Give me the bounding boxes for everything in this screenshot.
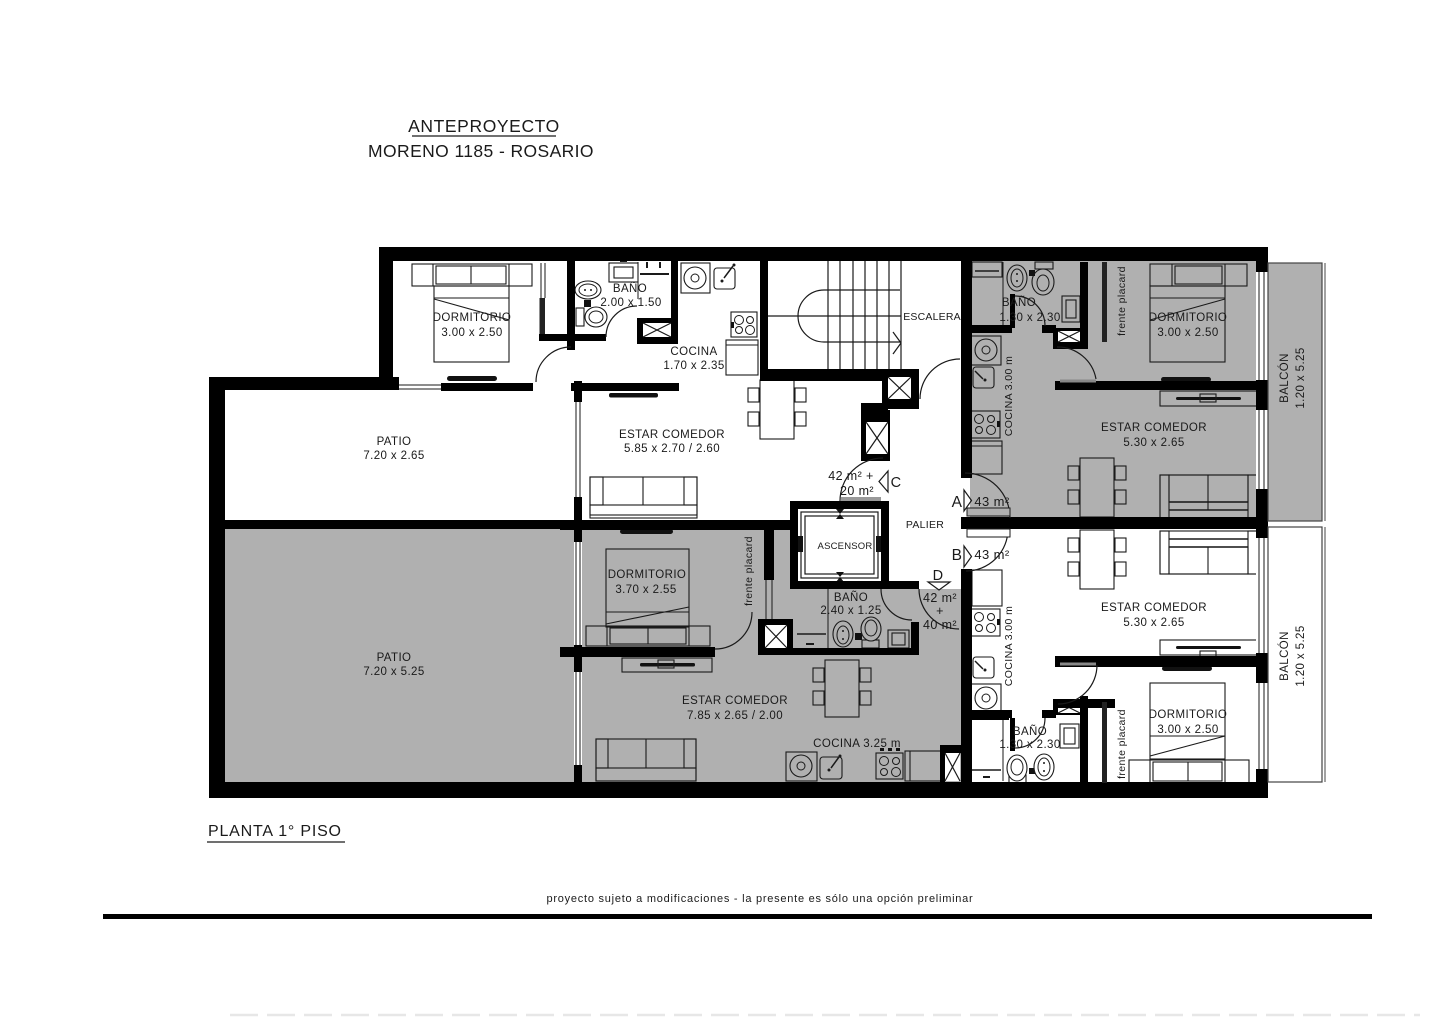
svg-text:frente placard: frente placard bbox=[1116, 266, 1128, 336]
svg-text:3.00 x 2.50: 3.00 x 2.50 bbox=[1157, 724, 1218, 736]
svg-text:40 m²: 40 m² bbox=[923, 618, 957, 632]
svg-text:1.20 x 5.25: 1.20 x 5.25 bbox=[1295, 625, 1307, 686]
svg-text:7.20 x 5.25: 7.20 x 5.25 bbox=[363, 666, 424, 678]
svg-text:2.00 x 1.50: 2.00 x 1.50 bbox=[600, 297, 661, 309]
svg-text:1.30 x 2.30: 1.30 x 2.30 bbox=[999, 739, 1060, 751]
svg-text:1.70 x 2.35: 1.70 x 2.35 bbox=[663, 360, 724, 372]
svg-text:DORMITORIO: DORMITORIO bbox=[1149, 312, 1228, 324]
svg-text:43 m²: 43 m² bbox=[974, 547, 1010, 562]
svg-text:MORENO 1185 - ROSARIO: MORENO 1185 - ROSARIO bbox=[368, 141, 594, 161]
svg-text:3.00 x 2.50: 3.00 x 2.50 bbox=[1157, 327, 1218, 339]
svg-text:ASCENSOR: ASCENSOR bbox=[818, 541, 873, 552]
svg-text:proyecto sujeto a modificacion: proyecto sujeto a modificaciones - la pr… bbox=[547, 893, 974, 905]
svg-text:ESTAR COMEDOR: ESTAR COMEDOR bbox=[1101, 602, 1207, 614]
svg-text:ANTEPROYECTO: ANTEPROYECTO bbox=[408, 116, 560, 136]
svg-text:5.30 x 2.65: 5.30 x 2.65 bbox=[1123, 617, 1184, 629]
svg-text:DORMITORIO: DORMITORIO bbox=[1149, 709, 1228, 721]
svg-text:43 m²: 43 m² bbox=[974, 494, 1010, 509]
svg-text:BALCÓN: BALCÓN bbox=[1278, 353, 1291, 403]
svg-text:42 m² +: 42 m² + bbox=[828, 469, 874, 483]
svg-text:PALIER: PALIER bbox=[906, 519, 944, 531]
svg-text:ESTAR COMEDOR: ESTAR COMEDOR bbox=[619, 429, 725, 441]
svg-text:PATIO: PATIO bbox=[377, 652, 412, 664]
svg-text:1.30 x 2.30: 1.30 x 2.30 bbox=[999, 312, 1060, 324]
svg-text:BAÑO: BAÑO bbox=[1002, 296, 1036, 309]
svg-text:3.00 x 2.50: 3.00 x 2.50 bbox=[441, 327, 502, 339]
svg-text:BAÑO: BAÑO bbox=[1013, 725, 1047, 738]
svg-text:frente placard: frente placard bbox=[743, 536, 755, 606]
svg-text:1.20 x 5.25: 1.20 x 5.25 bbox=[1295, 347, 1307, 408]
svg-text:42 m²: 42 m² bbox=[923, 591, 957, 605]
svg-text:BAÑO: BAÑO bbox=[834, 591, 868, 604]
svg-text:2.40 x 1.25: 2.40 x 1.25 bbox=[820, 605, 881, 617]
svg-text:B: B bbox=[952, 547, 963, 564]
svg-text:COCINA 3.00 m: COCINA 3.00 m bbox=[1003, 356, 1015, 436]
svg-text:COCINA: COCINA bbox=[670, 346, 717, 358]
svg-text:ESTAR COMEDOR: ESTAR COMEDOR bbox=[682, 695, 788, 707]
svg-text:PATIO: PATIO bbox=[377, 436, 412, 448]
svg-text:A: A bbox=[952, 494, 963, 511]
svg-text:3.70 x 2.55: 3.70 x 2.55 bbox=[615, 584, 676, 596]
svg-text:5.85 x 2.70 / 2.60: 5.85 x 2.70 / 2.60 bbox=[624, 443, 720, 455]
svg-text:BALCÓN: BALCÓN bbox=[1278, 631, 1291, 681]
svg-text:COCINA 3.00 m: COCINA 3.00 m bbox=[1003, 606, 1015, 686]
svg-text:5.30 x 2.65: 5.30 x 2.65 bbox=[1123, 437, 1184, 449]
svg-text:C: C bbox=[891, 475, 902, 491]
svg-text:BAÑO: BAÑO bbox=[613, 282, 647, 295]
svg-text:DORMITORIO: DORMITORIO bbox=[433, 312, 512, 324]
svg-text:+: + bbox=[936, 604, 944, 618]
svg-text:ESTAR COMEDOR: ESTAR COMEDOR bbox=[1101, 422, 1207, 434]
svg-text:20 m²: 20 m² bbox=[840, 484, 874, 498]
svg-text:frente placard: frente placard bbox=[1116, 709, 1128, 779]
svg-text:PLANTA 1° PISO: PLANTA 1° PISO bbox=[208, 823, 342, 840]
svg-text:DORMITORIO: DORMITORIO bbox=[608, 569, 687, 581]
svg-text:ESCALERA: ESCALERA bbox=[903, 311, 961, 323]
svg-text:7.85 x 2.65 / 2.00: 7.85 x 2.65 / 2.00 bbox=[687, 710, 783, 722]
svg-text:COCINA 3.25 m: COCINA 3.25 m bbox=[813, 738, 901, 750]
svg-text:7.20 x 2.65: 7.20 x 2.65 bbox=[363, 450, 424, 462]
